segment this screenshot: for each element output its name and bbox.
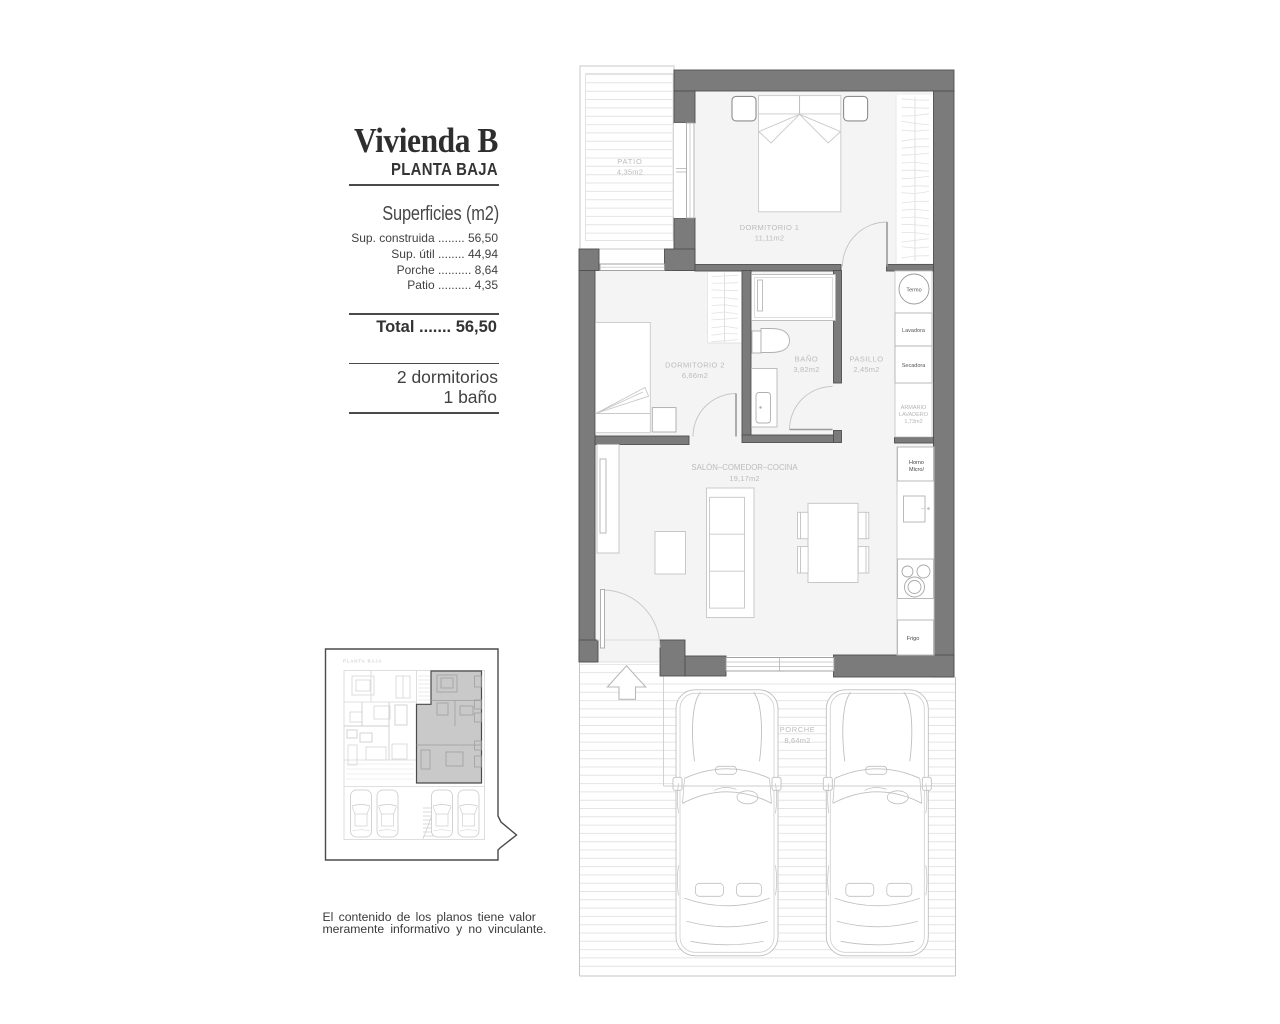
svg-text:Secadora: Secadora bbox=[902, 363, 926, 369]
svg-text:3,82m2: 3,82m2 bbox=[793, 365, 819, 374]
svg-text:BAÑO: BAÑO bbox=[795, 355, 819, 364]
svg-text:SALÓN–COMEDOR–COCINA: SALÓN–COMEDOR–COCINA bbox=[691, 463, 798, 472]
svg-text:Lavadora: Lavadora bbox=[902, 328, 926, 334]
svg-text:PORCHE: PORCHE bbox=[780, 725, 816, 734]
svg-text:PLANTA BAJA: PLANTA BAJA bbox=[343, 659, 382, 664]
svg-text:11,11m2: 11,11m2 bbox=[755, 234, 784, 243]
svg-text:2,45m2: 2,45m2 bbox=[853, 365, 879, 374]
svg-text:Micro/: Micro/ bbox=[909, 467, 924, 473]
svg-text:PASILLO: PASILLO bbox=[849, 355, 883, 364]
svg-text:DORMITORIO 1: DORMITORIO 1 bbox=[740, 223, 800, 232]
svg-text:LAVADERO: LAVADERO bbox=[899, 412, 929, 418]
svg-text:6,66m2: 6,66m2 bbox=[682, 371, 708, 380]
svg-text:19,17m2: 19,17m2 bbox=[729, 474, 760, 483]
svg-text:4,35m2: 4,35m2 bbox=[617, 168, 643, 177]
svg-text:8,64m2: 8,64m2 bbox=[784, 736, 810, 745]
svg-text:DORMITORIO 2: DORMITORIO 2 bbox=[665, 361, 725, 370]
svg-text:Frigo: Frigo bbox=[907, 636, 920, 642]
svg-text:ARMARIO: ARMARIO bbox=[901, 405, 927, 411]
svg-text:Horno: Horno bbox=[909, 460, 924, 466]
svg-text:PATIO: PATIO bbox=[617, 157, 642, 166]
svg-text:Termo: Termo bbox=[906, 288, 921, 294]
svg-text:1,73m2: 1,73m2 bbox=[904, 419, 922, 425]
